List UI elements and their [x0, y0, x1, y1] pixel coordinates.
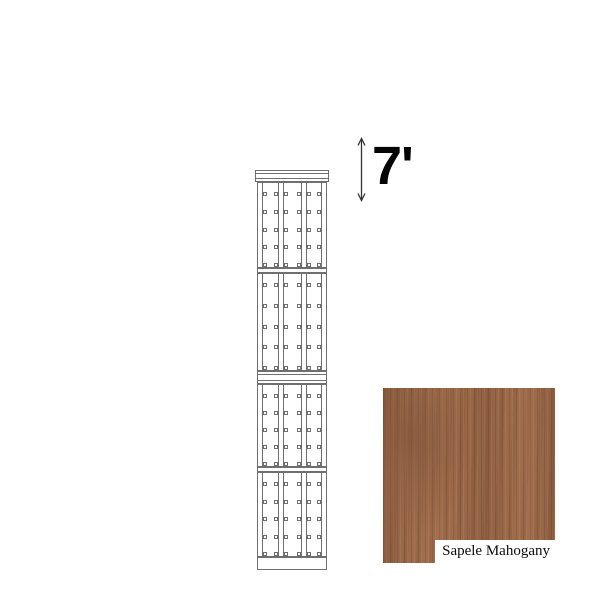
shelf-clip	[307, 517, 311, 521]
shelf-clip	[317, 304, 321, 308]
shelf-clip	[274, 192, 278, 196]
shelf-clip	[317, 245, 321, 249]
shelf-clip	[307, 228, 311, 232]
shelf-clip	[274, 411, 278, 415]
shelf-clip	[297, 500, 301, 504]
shelf-clip	[307, 245, 311, 249]
height-dimension-label: 7'	[372, 139, 413, 193]
shelf-clip	[274, 245, 278, 249]
shelf-clip	[274, 428, 278, 432]
shelf-clip	[274, 228, 278, 232]
panel-divider-line	[278, 274, 279, 370]
shelf-clip	[297, 210, 301, 214]
shelf-clip	[274, 263, 278, 267]
shelf-clip	[284, 482, 288, 486]
shelf-clip	[284, 428, 288, 432]
shelf-clip	[317, 228, 321, 232]
cabinet-crown	[255, 170, 329, 182]
shelf-clip	[284, 411, 288, 415]
shelf-clip	[284, 535, 288, 539]
shelf-clip	[307, 325, 311, 329]
shelf-clip	[263, 245, 267, 249]
shelf-clip	[263, 325, 267, 329]
shelf-clip	[317, 411, 321, 415]
shelf-clip	[317, 482, 321, 486]
shelf-clip	[284, 394, 288, 398]
shelf-clip	[274, 304, 278, 308]
shelf-clip	[297, 304, 301, 308]
cabinet-section	[257, 273, 327, 371]
shelf-clip	[263, 517, 267, 521]
shelf-clip	[284, 462, 288, 466]
shelf-clip	[297, 428, 301, 432]
shelf-clip	[307, 552, 311, 556]
shelf-clip	[307, 535, 311, 539]
shelf-clip	[274, 482, 278, 486]
shelf-clip	[317, 500, 321, 504]
crown-face-line	[256, 178, 328, 179]
shelf-clip	[284, 210, 288, 214]
panel-divider-line	[321, 274, 322, 370]
shelf-clip	[297, 192, 301, 196]
shelf-clip	[317, 517, 321, 521]
shelf-clip	[307, 411, 311, 415]
shelf-clip	[297, 263, 301, 267]
shelf-clip	[307, 445, 311, 449]
shelf-clip	[284, 192, 288, 196]
shelf-clip	[263, 462, 267, 466]
middle-band	[257, 371, 327, 384]
shelf-clip	[297, 535, 301, 539]
shelf-clip	[317, 445, 321, 449]
panel-divider-line	[321, 473, 322, 556]
shelf-clip	[274, 517, 278, 521]
panel-divider-line	[301, 183, 302, 267]
shelf-clip	[274, 462, 278, 466]
shelf-clip	[284, 500, 288, 504]
shelf-clip	[274, 283, 278, 287]
shelf-clip	[307, 283, 311, 287]
shelf-clip	[274, 445, 278, 449]
shelf-clip	[297, 345, 301, 349]
shelf-clip	[297, 445, 301, 449]
shelf-clip	[284, 228, 288, 232]
shelf-clip	[263, 210, 267, 214]
shelf-clip	[263, 192, 267, 196]
panel-divider-line	[283, 274, 284, 370]
shelf-clip	[263, 345, 267, 349]
panel-divider-line	[301, 274, 302, 370]
panel-divider-line	[278, 385, 279, 466]
shelf-clip	[274, 366, 278, 370]
shelf-clip	[317, 325, 321, 329]
shelf-clip	[263, 535, 267, 539]
shelf-clip	[307, 192, 311, 196]
shelf-clip	[307, 500, 311, 504]
shelf-clip	[263, 445, 267, 449]
shelf-clip	[297, 245, 301, 249]
finish-name-label: Sapele Mahogany	[435, 540, 555, 563]
shelf-clip	[284, 552, 288, 556]
section-rail	[257, 268, 327, 273]
shelf-clip	[263, 394, 267, 398]
shelf-clip	[263, 283, 267, 287]
shelf-clip	[317, 283, 321, 287]
middle-band-face-line	[258, 380, 326, 381]
product-drawing-stage: 7' Sapele Mahogany	[0, 0, 600, 600]
shelf-clip	[307, 263, 311, 267]
shelf-clip	[284, 325, 288, 329]
shelf-clip	[263, 304, 267, 308]
shelf-clip	[284, 345, 288, 349]
shelf-clip	[297, 462, 301, 466]
shelf-clip	[274, 210, 278, 214]
shelf-clip	[297, 325, 301, 329]
crown-face-line	[256, 173, 328, 174]
finish-swatch: Sapele Mahogany	[383, 388, 555, 563]
shelf-clip	[284, 263, 288, 267]
shelf-clip	[263, 366, 267, 370]
shelf-clip	[317, 428, 321, 432]
shelf-clip	[284, 445, 288, 449]
shelf-clip	[274, 500, 278, 504]
shelf-clip	[263, 482, 267, 486]
shelf-clip	[274, 394, 278, 398]
shelf-clip	[263, 500, 267, 504]
shelf-clip	[297, 517, 301, 521]
wood-texture	[383, 388, 555, 563]
shelf-clip	[284, 517, 288, 521]
panel-divider-line	[306, 274, 307, 370]
shelf-clip	[297, 482, 301, 486]
panel-divider-line	[301, 473, 302, 556]
shelf-clip	[297, 366, 301, 370]
shelf-clip	[263, 228, 267, 232]
shelf-clip	[317, 345, 321, 349]
shelf-clip	[317, 394, 321, 398]
shelf-clip	[274, 552, 278, 556]
cabinet-base	[257, 557, 327, 570]
panel-divider-line	[262, 274, 263, 370]
shelf-clip	[307, 428, 311, 432]
shelf-clip	[317, 366, 321, 370]
panel-divider-line	[278, 183, 279, 267]
shelf-clip	[297, 411, 301, 415]
panel-divider-line	[321, 385, 322, 466]
shelf-clip	[297, 552, 301, 556]
shelf-clip	[284, 245, 288, 249]
shelf-clip	[274, 325, 278, 329]
shelf-clip	[307, 394, 311, 398]
shelf-clip	[307, 482, 311, 486]
shelf-clip	[307, 210, 311, 214]
panel-divider-line	[301, 385, 302, 466]
panel-divider-line	[278, 473, 279, 556]
shelf-clip	[317, 210, 321, 214]
shelf-clip	[274, 345, 278, 349]
panel-divider-line	[321, 183, 322, 267]
shelf-clip	[263, 263, 267, 267]
shelf-clip	[297, 283, 301, 287]
shelf-clip	[317, 263, 321, 267]
shelf-clip	[284, 283, 288, 287]
shelf-clip	[284, 366, 288, 370]
shelf-clip	[284, 304, 288, 308]
shelf-clip	[263, 552, 267, 556]
shelf-clip	[307, 462, 311, 466]
shelf-clip	[317, 462, 321, 466]
shelf-clip	[297, 228, 301, 232]
middle-band-face-line	[258, 374, 326, 375]
shelf-clip	[263, 428, 267, 432]
shelf-clip	[317, 192, 321, 196]
shelf-clip	[297, 394, 301, 398]
vertical-double-arrow-icon	[355, 136, 368, 203]
shelf-clip	[317, 535, 321, 539]
shelf-clip	[263, 411, 267, 415]
shelf-clip	[307, 345, 311, 349]
shelf-clip	[317, 552, 321, 556]
shelf-clip	[274, 535, 278, 539]
section-rail	[257, 467, 327, 472]
shelf-clip	[307, 366, 311, 370]
shelf-clip	[307, 304, 311, 308]
